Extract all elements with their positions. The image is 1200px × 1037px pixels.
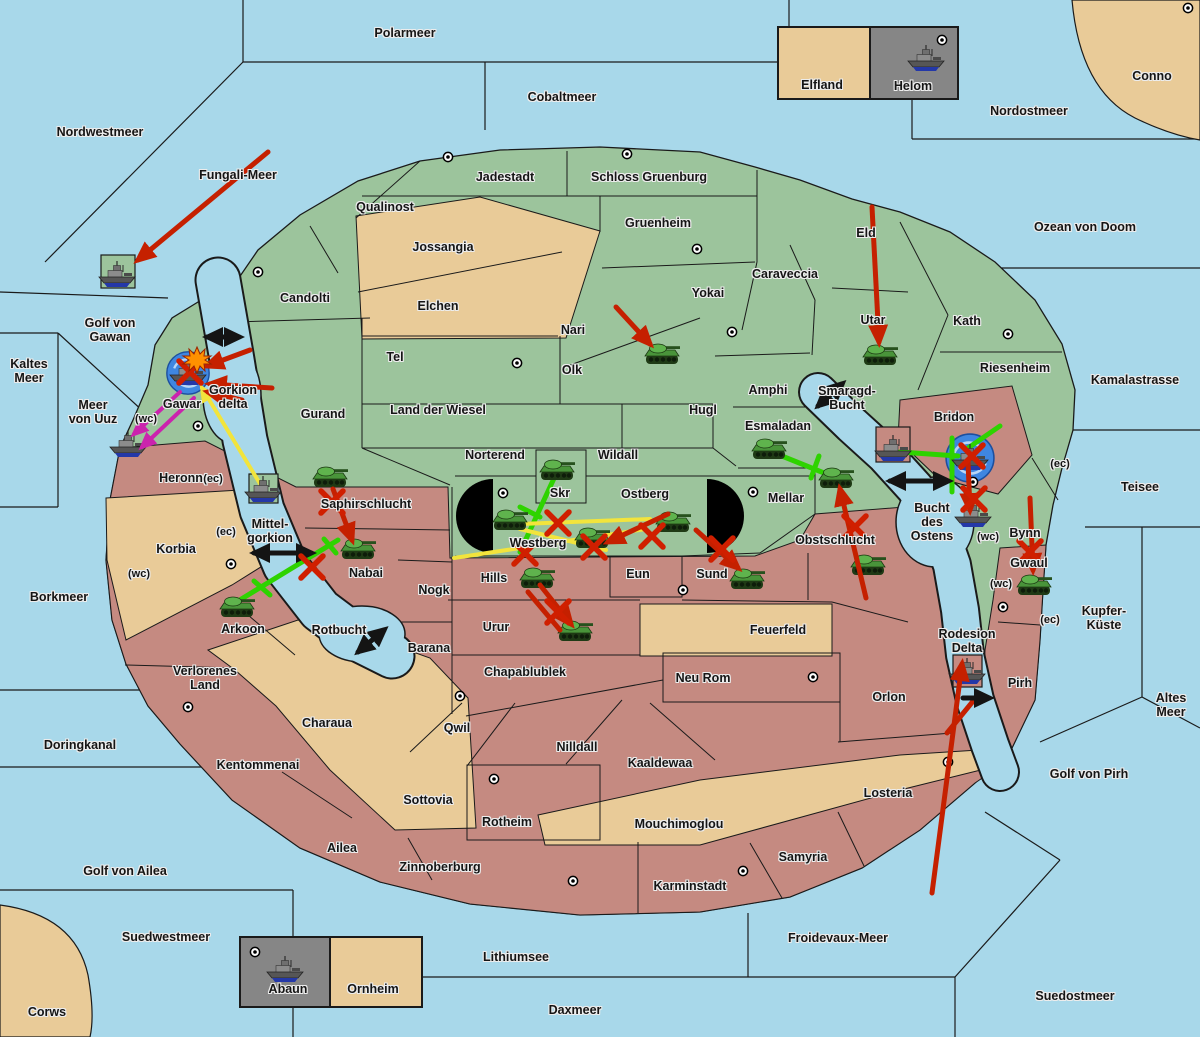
supply-center-icon — [226, 559, 235, 568]
tank-icon[interactable] — [558, 621, 593, 641]
supply-center-icon — [489, 774, 498, 783]
tank-icon[interactable] — [1017, 575, 1052, 595]
supply-center-icon — [183, 702, 192, 711]
supply-center-icon — [622, 149, 631, 158]
tank-icon[interactable] — [341, 539, 376, 559]
supply-center-icon — [253, 267, 262, 276]
supply-center-icon — [193, 421, 202, 430]
supply-center-icon — [808, 672, 817, 681]
supply-center-icon — [250, 947, 259, 956]
supply-center-icon — [1003, 329, 1012, 338]
supply-center-icon — [692, 244, 701, 253]
tank-icon[interactable] — [645, 344, 680, 364]
tank-icon[interactable] — [220, 597, 255, 617]
supply-center-icon — [455, 691, 464, 700]
game-map: Polarmeer Cobaltmeer Nordostmeer Nordwes… — [0, 0, 1200, 1037]
game-map-svg — [0, 0, 1200, 1037]
supply-center-icon — [512, 358, 521, 367]
supply-center-icon — [998, 602, 1007, 611]
supply-center-icon — [937, 35, 946, 44]
tank-icon[interactable] — [730, 569, 765, 589]
supply-center-icon — [748, 487, 757, 496]
tank-icon[interactable] — [313, 467, 348, 487]
supply-center-icon — [568, 876, 577, 885]
supply-center-icon — [727, 327, 736, 336]
tank-icon[interactable] — [540, 460, 575, 480]
supply-center-icon — [443, 152, 452, 161]
supply-center-icon — [678, 585, 687, 594]
tank-icon[interactable] — [863, 345, 898, 365]
supply-center-icon — [498, 488, 507, 497]
tank-icon[interactable] — [819, 468, 854, 488]
tank-icon[interactable] — [493, 510, 528, 530]
tank-icon[interactable] — [752, 439, 787, 459]
supply-center-icon — [1183, 3, 1192, 12]
supply-center-icon — [738, 866, 747, 875]
